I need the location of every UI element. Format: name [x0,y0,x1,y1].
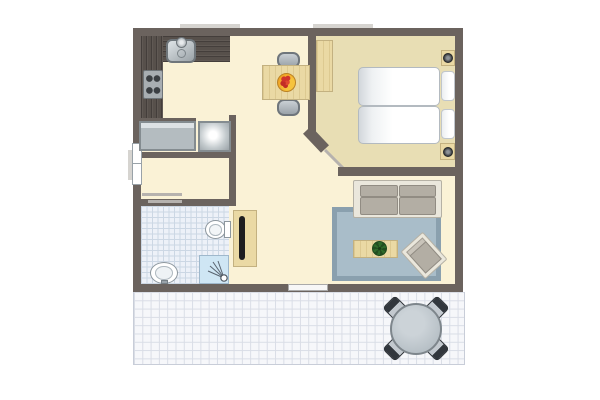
twin-bed-1 [358,67,440,106]
sofa [353,180,442,218]
shower-spray-icon [200,256,230,285]
potted-plant [372,241,387,256]
sofa-back-cushion-left [360,185,398,197]
pillow-2 [441,109,455,139]
patio-table [390,303,442,355]
outer-wall-right [455,28,463,292]
sofa-seat-left [360,197,398,215]
outer-wall-top [133,28,463,36]
bathroom-door-slider [148,200,182,203]
fruit-bowl [277,73,296,92]
sofa-back-cushion-right [399,185,436,197]
wall-bedroom-bottom [338,167,455,176]
storage-door-slider [142,193,182,196]
terrace-door [288,284,328,291]
kitchen-sink [166,39,196,63]
sofa-seat-right [399,197,436,215]
washing-machine [139,121,196,151]
apartment-plan [133,28,463,292]
dining-chair-south [277,99,300,116]
fridge [198,121,231,152]
sliding-door-leaf [239,216,245,260]
toilet-tank [224,221,231,238]
wardrobe [316,40,333,92]
twin-bed-2 [358,106,440,144]
wall-storage-bottom [141,152,236,158]
stove [143,70,163,99]
bedside-lamp-bottom [443,147,453,157]
terrace-floor [133,292,465,365]
hall-sliding-door [233,210,257,267]
floor-plan-canvas [0,0,600,400]
washbasin-tap [161,280,168,284]
bedside-lamp-top [443,53,453,63]
pillow-1 [441,71,455,101]
shower [199,255,229,284]
toilet-bowl [205,220,226,239]
